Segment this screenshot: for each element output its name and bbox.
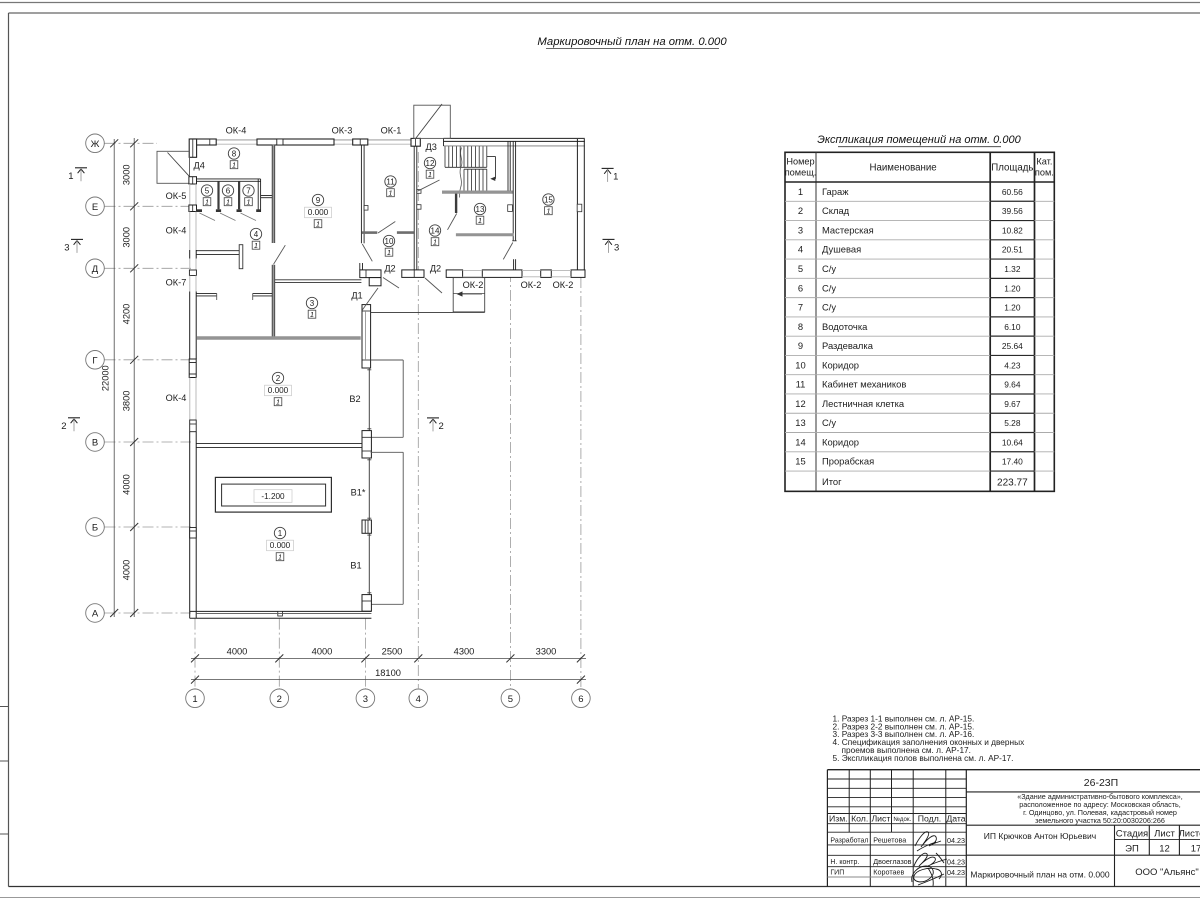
svg-text:Коротаев: Коротаев: [873, 868, 904, 877]
svg-text:земельного участка 50:20:00302: земельного участка 50:20:0030206:266: [1035, 816, 1165, 825]
svg-text:Двоеглазов: Двоеглазов: [873, 857, 911, 866]
svg-text:3: 3: [363, 694, 368, 705]
svg-text:11: 11: [386, 177, 395, 186]
svg-text:пом.: пом.: [1035, 168, 1054, 178]
svg-text:6: 6: [226, 186, 231, 195]
svg-text:18100: 18100: [375, 668, 401, 678]
svg-text:Наименование: Наименование: [870, 163, 937, 174]
svg-text:60.56: 60.56: [1002, 187, 1023, 197]
svg-text:-1.200: -1.200: [261, 492, 285, 501]
svg-text:Д3: Д3: [426, 142, 437, 152]
svg-text:Итог: Итог: [822, 476, 842, 487]
svg-text:0.000: 0.000: [270, 541, 291, 550]
svg-text:1: 1: [278, 529, 283, 538]
svg-text:2: 2: [798, 205, 803, 216]
svg-text:9: 9: [316, 196, 321, 205]
svg-text:ОК-2: ОК-2: [521, 280, 542, 290]
svg-text:3000: 3000: [122, 227, 132, 248]
svg-text:С/у: С/у: [822, 417, 836, 428]
svg-text:13: 13: [476, 205, 485, 214]
svg-text:1: 1: [226, 197, 230, 206]
svg-text:9.64: 9.64: [1004, 380, 1021, 390]
svg-text:1.32: 1.32: [1004, 264, 1021, 274]
svg-text:1: 1: [205, 197, 209, 206]
svg-text:3: 3: [310, 299, 315, 308]
svg-text:1: 1: [428, 170, 432, 179]
svg-text:В: В: [92, 438, 98, 449]
svg-text:ОК-7: ОК-7: [166, 278, 187, 288]
svg-text:7: 7: [798, 302, 803, 313]
svg-text:№док.: №док.: [893, 816, 911, 823]
svg-text:6.10: 6.10: [1004, 322, 1021, 332]
svg-text:2: 2: [276, 374, 281, 383]
svg-text:8: 8: [232, 149, 237, 158]
svg-text:17: 17: [1191, 844, 1200, 855]
svg-text:1: 1: [278, 552, 282, 561]
svg-text:3300: 3300: [536, 647, 557, 657]
svg-text:0.000: 0.000: [268, 386, 289, 395]
svg-text:Склад: Склад: [822, 205, 850, 216]
svg-text:12: 12: [1159, 844, 1170, 855]
svg-text:3800: 3800: [122, 391, 132, 412]
svg-text:4: 4: [416, 694, 421, 705]
svg-text:Разработал: Разработал: [830, 837, 868, 845]
svg-text:1: 1: [433, 237, 437, 246]
svg-text:2: 2: [277, 694, 282, 705]
svg-text:1: 1: [310, 310, 314, 319]
svg-text:А: А: [92, 609, 99, 620]
svg-text:Кабинет механиков: Кабинет механиков: [822, 379, 906, 390]
svg-text:20.51: 20.51: [1002, 245, 1023, 255]
svg-text:12: 12: [795, 398, 805, 409]
svg-text:10.64: 10.64: [1002, 437, 1023, 447]
svg-text:В1: В1: [350, 561, 361, 571]
svg-text:Д2: Д2: [430, 264, 441, 274]
svg-text:Д1: Д1: [351, 291, 362, 301]
svg-text:3: 3: [614, 242, 619, 253]
svg-text:Подл.: Подл.: [918, 813, 941, 823]
svg-text:3: 3: [798, 224, 803, 235]
svg-text:ОК-4: ОК-4: [166, 226, 187, 236]
svg-text:Кол.: Кол.: [851, 813, 868, 823]
svg-text:3000: 3000: [122, 164, 132, 185]
svg-text:04.23: 04.23: [947, 868, 965, 877]
svg-text:10.82: 10.82: [1002, 225, 1023, 235]
svg-text:Изм.: Изм.: [829, 813, 848, 823]
svg-text:Д2: Д2: [384, 264, 395, 274]
svg-text:Д4: Д4: [194, 161, 205, 171]
svg-text:ОК-2: ОК-2: [463, 280, 484, 290]
svg-text:4: 4: [254, 230, 259, 239]
svg-text:1: 1: [254, 241, 258, 250]
svg-text:ООО "Альянс": ООО "Альянс": [1135, 867, 1199, 878]
svg-text:9.67: 9.67: [1004, 399, 1021, 409]
svg-text:10: 10: [795, 359, 805, 370]
svg-text:04.23: 04.23: [947, 858, 965, 867]
svg-text:Лист: Лист: [871, 813, 890, 823]
svg-text:В2: В2: [349, 394, 360, 404]
svg-text:Маркировочный план на отм. 0.0: Маркировочный план на отм. 0.000: [970, 870, 1110, 880]
svg-text:12: 12: [426, 159, 435, 168]
svg-text:С/у: С/у: [822, 302, 836, 313]
svg-text:С/у: С/у: [822, 282, 836, 293]
svg-text:1: 1: [388, 188, 392, 197]
svg-text:1: 1: [276, 397, 280, 406]
svg-text:14: 14: [431, 226, 440, 235]
svg-text:Лист: Лист: [1154, 829, 1175, 840]
svg-text:Листов: Листов: [1179, 829, 1200, 840]
svg-text:1: 1: [192, 694, 197, 705]
svg-text:Дата: Дата: [946, 813, 965, 823]
svg-text:Душевая: Душевая: [822, 244, 861, 255]
svg-text:04.23: 04.23: [947, 836, 965, 845]
svg-text:Решетова: Решетова: [873, 836, 906, 845]
svg-text:Экспликация помещений на отм.: Экспликация помещений на отм. 0.000: [817, 134, 1021, 146]
svg-text:2500: 2500: [382, 647, 403, 657]
svg-text:5: 5: [508, 694, 513, 705]
svg-text:Мастерская: Мастерская: [822, 224, 874, 235]
svg-text:39.56: 39.56: [1002, 206, 1023, 216]
svg-text:Лестничная клетка: Лестничная клетка: [822, 398, 905, 409]
svg-text:4000: 4000: [122, 474, 132, 495]
svg-text:ОК-5: ОК-5: [166, 191, 187, 201]
svg-text:17.40: 17.40: [1002, 457, 1023, 467]
svg-text:4: 4: [798, 244, 803, 255]
svg-text:5.28: 5.28: [1004, 418, 1021, 428]
svg-text:Площадь: Площадь: [991, 163, 1033, 174]
svg-text:Н. контр.: Н. контр.: [830, 859, 859, 866]
svg-text:9: 9: [798, 340, 803, 351]
svg-text:ОК-1: ОК-1: [381, 126, 402, 136]
svg-text:6: 6: [798, 282, 803, 293]
svg-text:Гараж: Гараж: [822, 186, 849, 197]
svg-text:Водоточка: Водоточка: [822, 321, 868, 332]
svg-text:7: 7: [246, 186, 251, 195]
svg-text:25.64: 25.64: [1002, 341, 1023, 351]
svg-text:С/у: С/у: [822, 263, 836, 274]
svg-text:1: 1: [68, 171, 73, 182]
svg-text:4000: 4000: [312, 647, 333, 657]
svg-text:22000: 22000: [101, 365, 111, 391]
svg-text:Ж: Ж: [91, 139, 100, 150]
svg-text:1.20: 1.20: [1004, 303, 1021, 313]
svg-text:Г: Г: [92, 355, 97, 366]
svg-text:2: 2: [61, 421, 66, 432]
svg-text:15: 15: [544, 195, 553, 204]
svg-text:10: 10: [385, 237, 394, 246]
svg-text:11: 11: [796, 379, 806, 390]
svg-text:помещ.: помещ.: [785, 168, 817, 178]
svg-text:3: 3: [64, 242, 69, 253]
svg-text:15: 15: [795, 456, 805, 467]
svg-text:Б: Б: [92, 523, 98, 534]
svg-text:Д: Д: [92, 264, 99, 275]
svg-text:1: 1: [387, 248, 391, 257]
svg-text:ОК-4: ОК-4: [166, 393, 187, 403]
svg-text:Коридор: Коридор: [822, 436, 859, 447]
svg-text:Номер: Номер: [786, 157, 814, 167]
svg-text:8: 8: [798, 321, 803, 332]
svg-text:Прорабская: Прорабская: [822, 456, 874, 467]
svg-text:1.20: 1.20: [1004, 283, 1021, 293]
svg-text:1: 1: [613, 171, 618, 182]
svg-text:5: 5: [798, 263, 803, 274]
svg-text:4200: 4200: [122, 304, 132, 325]
svg-text:2: 2: [439, 421, 444, 432]
svg-text:4300: 4300: [454, 647, 475, 657]
svg-text:5: 5: [205, 186, 210, 195]
svg-text:6: 6: [578, 694, 583, 705]
svg-text:4.23: 4.23: [1004, 360, 1021, 370]
svg-text:ОК-3: ОК-3: [332, 126, 353, 136]
svg-text:1: 1: [316, 219, 320, 228]
svg-text:ГИП: ГИП: [830, 870, 844, 877]
svg-text:1: 1: [246, 197, 250, 206]
svg-text:Маркировочный план на отм. 0.0: Маркировочный план на отм. 0.000: [537, 36, 727, 48]
svg-text:1: 1: [798, 186, 803, 197]
svg-text:Стадия: Стадия: [1116, 829, 1148, 840]
svg-text:5. Экспликация полов выполнена: 5. Экспликация полов выполнена см. л. АР…: [833, 753, 1014, 763]
svg-text:0.000: 0.000: [308, 208, 329, 217]
svg-text:1: 1: [478, 216, 482, 225]
svg-text:4000: 4000: [227, 647, 248, 657]
svg-text:1: 1: [546, 206, 550, 215]
svg-text:26-23П: 26-23П: [1084, 777, 1118, 789]
svg-text:4000: 4000: [122, 560, 132, 581]
svg-text:Раздевалка: Раздевалка: [822, 340, 874, 351]
svg-text:ОК-4: ОК-4: [226, 126, 247, 136]
svg-text:Коридор: Коридор: [822, 359, 859, 370]
svg-text:ОК-2: ОК-2: [553, 280, 574, 290]
svg-text:ЭП: ЭП: [1125, 844, 1139, 855]
svg-text:13: 13: [795, 417, 805, 428]
svg-text:ИП Крючков Антон Юрьевич: ИП Крючков Антон Юрьевич: [984, 831, 1096, 841]
svg-text:14: 14: [795, 436, 805, 447]
svg-text:223.77: 223.77: [997, 477, 1028, 488]
svg-text:1: 1: [232, 160, 236, 169]
svg-text:Кат.: Кат.: [1036, 157, 1052, 167]
svg-text:В1*: В1*: [351, 488, 366, 498]
svg-text:Е: Е: [92, 202, 98, 213]
